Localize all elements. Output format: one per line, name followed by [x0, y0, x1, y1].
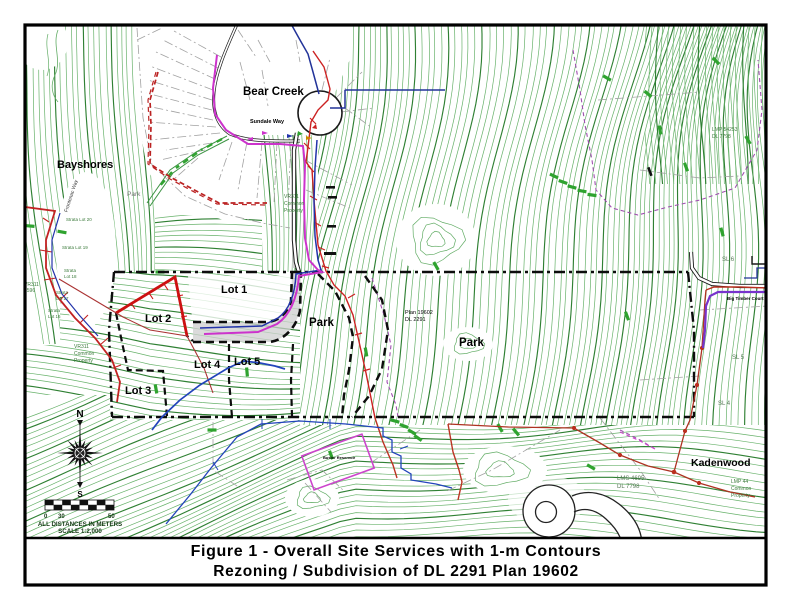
svg-text:Bayshores: Bayshores: [57, 159, 113, 171]
svg-text:Kadenwood: Kadenwood: [691, 457, 751, 469]
svg-text:Strata: Strata: [48, 308, 61, 313]
svg-text:SL 5: SL 5: [732, 355, 745, 361]
svg-text:Lot 5: Lot 5: [234, 356, 260, 368]
svg-text:S: S: [77, 490, 83, 499]
svg-text:VR311: VR311: [74, 344, 89, 350]
svg-text:LMP 44: LMP 44: [731, 479, 748, 485]
svg-text:Lot 2: Lot 2: [145, 313, 171, 325]
svg-text:SCALE 1:2,000: SCALE 1:2,000: [58, 528, 102, 535]
svg-text:VR311: VR311: [284, 194, 299, 200]
svg-text:Common: Common: [731, 486, 752, 492]
svg-text:Property: Property: [74, 358, 93, 364]
svg-text:DL 7798: DL 7798: [712, 134, 731, 140]
svg-text:30: 30: [58, 514, 65, 520]
svg-text:SL 4: SL 4: [718, 401, 731, 407]
svg-text:Common: Common: [284, 201, 305, 207]
svg-text:Property: Property: [284, 208, 303, 214]
svg-text:Strata Lot 20: Strata Lot 20: [66, 217, 92, 222]
svg-text:Park: Park: [309, 317, 335, 329]
svg-text:Bear Creek: Bear Creek: [243, 86, 304, 98]
svg-text:Sundale Way: Sundale Way: [250, 119, 285, 125]
svg-text:Plan 19602: Plan 19602: [405, 310, 433, 316]
svg-text:Park: Park: [459, 337, 485, 349]
svg-text:LMS 4695: LMS 4695: [617, 476, 645, 482]
svg-text:ALL DISTANCES IN METERS: ALL DISTANCES IN METERS: [38, 521, 122, 528]
svg-text:N: N: [76, 409, 83, 420]
svg-text:DL 7798: DL 7798: [617, 484, 640, 490]
svg-text:Strata: Strata: [64, 268, 77, 273]
svg-text:Figure 1 - Overall Site Servic: Figure 1 - Overall Site Services with 1-…: [191, 543, 602, 560]
svg-text:Strata Lot 19: Strata Lot 19: [62, 245, 88, 250]
svg-text:Common: Common: [74, 351, 95, 357]
svg-text:Lot 4: Lot 4: [194, 359, 221, 371]
svg-text:Lot 16: Lot 16: [48, 314, 61, 319]
svg-text:Lot 1: Lot 1: [221, 284, 247, 296]
svg-text:LMP 54253: LMP 54253: [712, 127, 738, 133]
svg-text:Big Timber Court: Big Timber Court: [727, 296, 764, 301]
svg-text:Lot 18: Lot 18: [64, 274, 77, 279]
svg-text:Buster Reservoir: Buster Reservoir: [323, 455, 356, 460]
svg-text:50: 50: [108, 514, 115, 520]
svg-text:SL 6: SL 6: [722, 257, 735, 263]
svg-text:Park: Park: [127, 191, 141, 198]
svg-text:Lot 3: Lot 3: [125, 385, 151, 397]
svg-text:Property: Property: [731, 493, 750, 499]
svg-text:DL 2291: DL 2291: [405, 317, 426, 323]
svg-text:Rezoning / Subdivision of DL 2: Rezoning / Subdivision of DL 2291 Plan 1…: [213, 563, 579, 580]
svg-text:Strata: Strata: [56, 290, 69, 295]
svg-text:Lot 17: Lot 17: [56, 296, 69, 301]
